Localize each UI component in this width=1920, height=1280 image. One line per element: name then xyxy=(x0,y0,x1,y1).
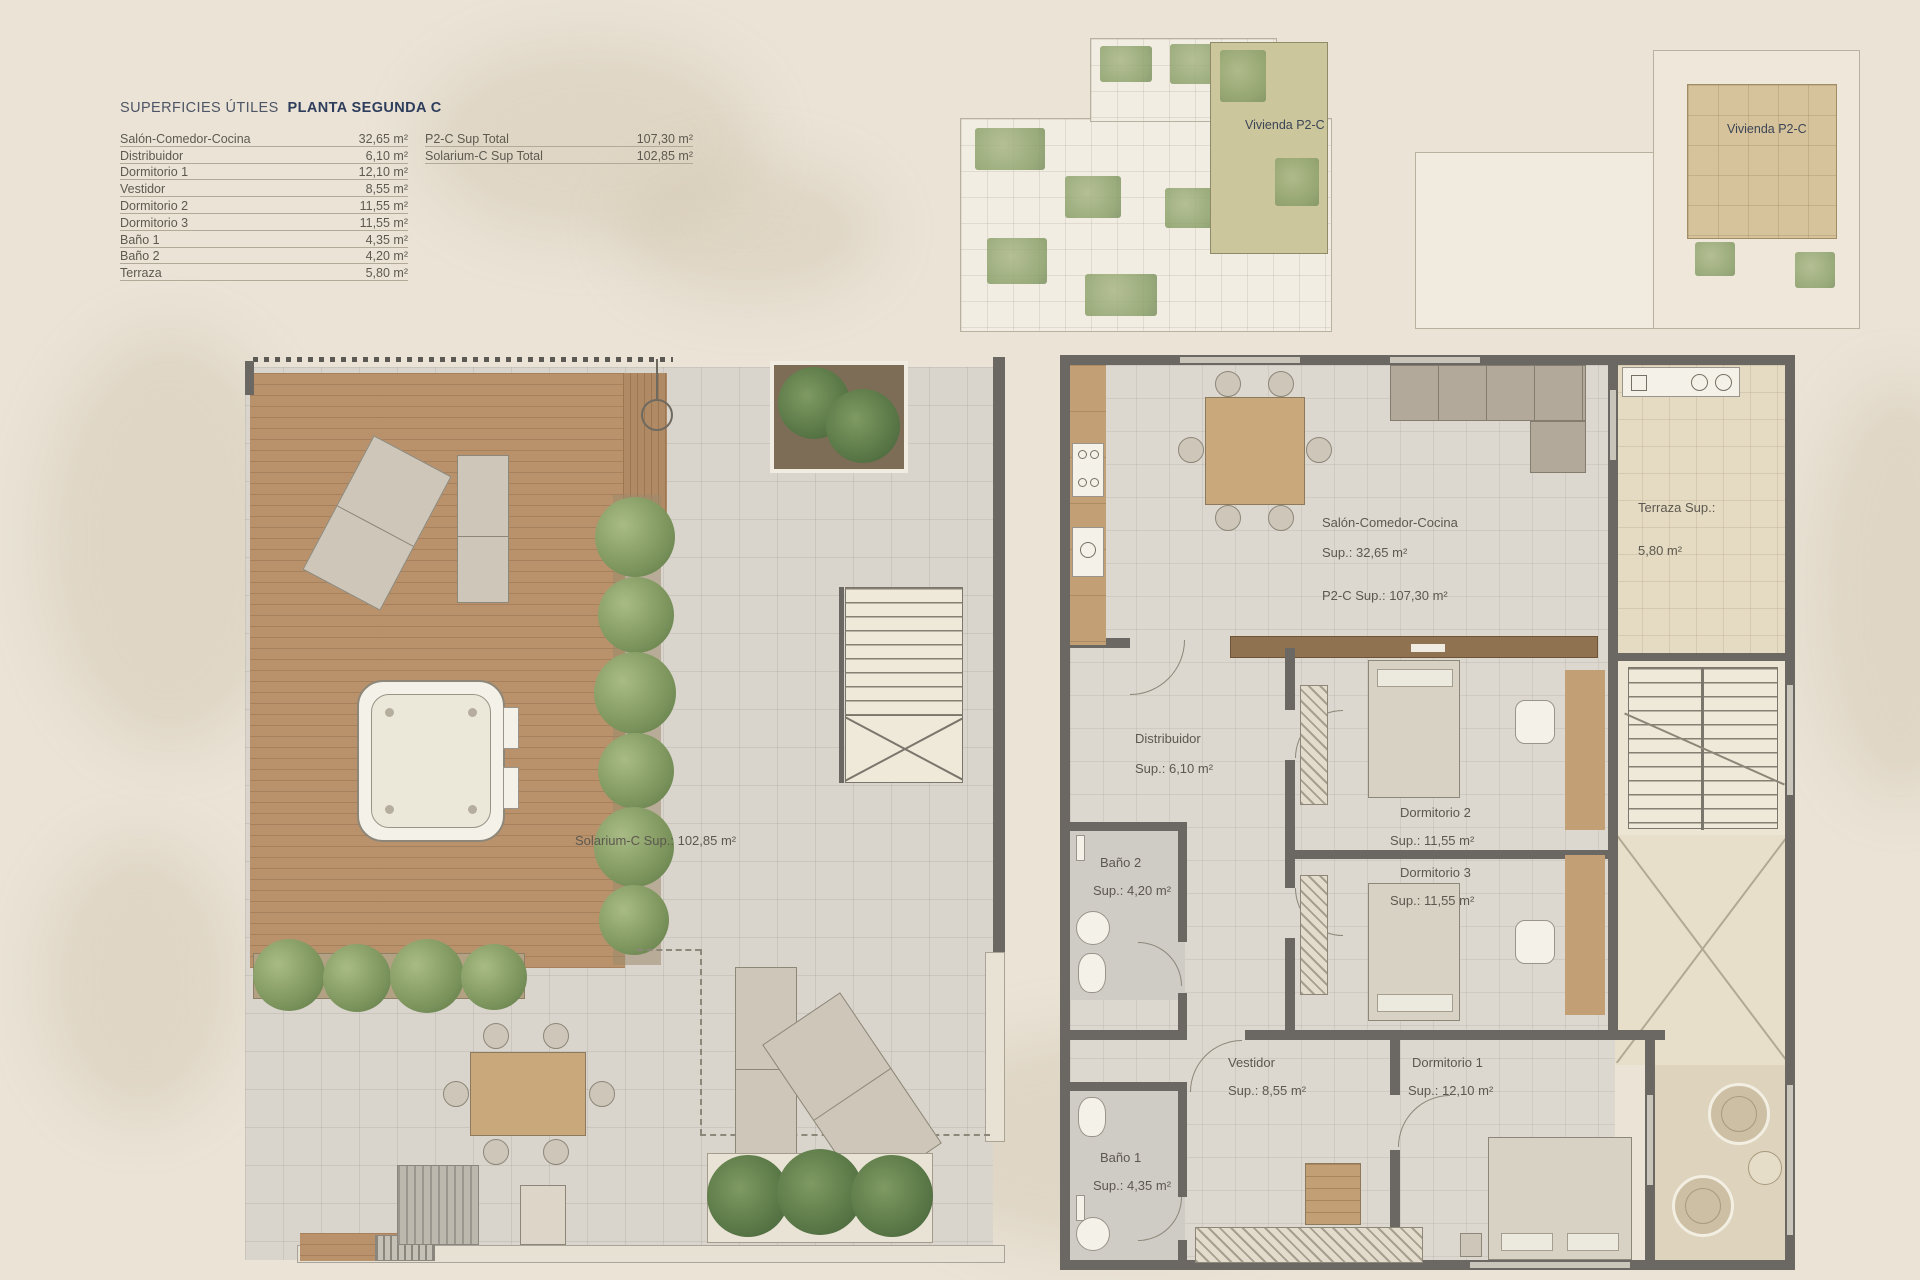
floorplan-sheet: SUPERFICIES ÚTILES PLANTA SEGUNDA C Saló… xyxy=(0,0,1920,1280)
legend-title-right: PLANTA SEGUNDA C xyxy=(288,100,442,116)
balcony-door xyxy=(1647,1095,1653,1185)
legend-row: Baño 24,20 m² xyxy=(120,248,408,265)
legend-title: SUPERFICIES ÚTILES PLANTA SEGUNDA C xyxy=(120,100,700,116)
palm-tree xyxy=(826,389,900,463)
room-label-vestidor: Vestidor xyxy=(1228,1055,1275,1070)
key-plan-1: Vivienda P2-C xyxy=(915,38,1330,330)
desk xyxy=(1565,855,1605,1015)
jacuzzi xyxy=(357,680,505,842)
hedge-bush xyxy=(595,497,675,577)
room-label-bano1-sup: Sup.: 4,35 m² xyxy=(1093,1178,1171,1193)
key-plan-2: Vivienda P2-C xyxy=(1415,42,1860,327)
hedge-bush xyxy=(390,939,464,1013)
room-label-distribuidor-sup: Sup.: 6,10 m² xyxy=(1135,761,1213,776)
chair xyxy=(1215,505,1241,531)
legend-total-row: Solarium-C Sup Total102,85 m² xyxy=(425,147,693,164)
stairs-diagonal xyxy=(845,715,963,783)
sink xyxy=(1076,1217,1110,1251)
chair xyxy=(543,1023,569,1049)
legend-row: Dormitorio 211,55 m² xyxy=(120,197,408,214)
key-plan-2-highlight xyxy=(1687,84,1837,239)
wardrobe-band xyxy=(1195,1227,1423,1263)
chair xyxy=(1268,505,1294,531)
room-label-dormitorio2: Dormitorio 2 xyxy=(1400,805,1471,820)
legend-totals: P2-C Sup Total107,30 m² Solarium-C Sup T… xyxy=(425,130,693,164)
room-label-salon-sup: Sup.: 32,65 m² xyxy=(1322,545,1407,560)
wardrobe xyxy=(1300,685,1328,805)
legend-row: Vestidor8,55 m² xyxy=(120,180,408,197)
room-label-p2c-total: P2-C Sup.: 107,30 m² xyxy=(1322,588,1448,603)
desk-chair xyxy=(1515,700,1555,744)
bed xyxy=(1368,660,1460,798)
solarium-area-label: Solarium-C Sup.: 102,85 m² xyxy=(575,833,736,848)
egg-chair xyxy=(1672,1175,1734,1237)
sofa-chaise xyxy=(1530,421,1586,473)
chair xyxy=(543,1139,569,1165)
desk xyxy=(1565,670,1605,830)
hedge-bush xyxy=(594,652,676,734)
watermark-blob xyxy=(620,160,880,300)
jacuzzi-step xyxy=(503,707,519,749)
hedge-bush xyxy=(253,939,325,1011)
grate xyxy=(397,1165,479,1245)
dining-table xyxy=(1205,397,1305,505)
key-plan-1-label: Vivienda P2-C xyxy=(1245,118,1325,132)
legend-row: Distribuidor6,10 m² xyxy=(120,147,408,164)
wardrobe xyxy=(1300,875,1328,995)
shelving xyxy=(1305,1163,1361,1225)
dashed-boundary xyxy=(700,949,704,1135)
hedge-bush xyxy=(598,733,674,809)
legend-row: Baño 14,35 m² xyxy=(120,231,408,248)
room-label-dormitorio1: Dormitorio 1 xyxy=(1412,1055,1483,1070)
window xyxy=(1390,357,1480,363)
window xyxy=(1787,685,1793,795)
legend-row: Terraza5,80 m² xyxy=(120,264,408,281)
light-icon xyxy=(641,399,673,431)
jacuzzi-step xyxy=(503,767,519,809)
kitchen-sink xyxy=(1072,527,1104,577)
room-label-bano2-sup: Sup.: 4,20 m² xyxy=(1093,883,1171,898)
room-label-dormitorio3: Dormitorio 3 xyxy=(1400,865,1471,880)
window xyxy=(1180,357,1300,363)
room-label-bano1: Baño 1 xyxy=(1100,1150,1141,1165)
room-label-dormitorio3-sup: Sup.: 11,55 m² xyxy=(1390,893,1474,908)
room-label-vestidor-sup: Sup.: 8,55 m² xyxy=(1228,1083,1306,1098)
watermark-blob xyxy=(40,840,240,1120)
solarium-stairs xyxy=(845,587,963,717)
room-label-dormitorio1-sup: Sup.: 12,10 m² xyxy=(1408,1083,1493,1098)
room-label-terraza: Terraza Sup.: xyxy=(1638,500,1715,515)
chair xyxy=(589,1081,615,1107)
chair xyxy=(1178,437,1204,463)
shower-head-icon xyxy=(1076,835,1085,861)
palm-tree xyxy=(777,1149,863,1235)
chair xyxy=(443,1081,469,1107)
hedge-bush xyxy=(323,944,391,1012)
watermark-blob xyxy=(1810,380,1920,800)
hedge-bush xyxy=(599,885,669,955)
double-bed xyxy=(1488,1137,1632,1260)
chair xyxy=(483,1139,509,1165)
party-wall xyxy=(985,952,1005,1142)
kitchen-counter xyxy=(1070,365,1106,645)
deck xyxy=(250,373,625,968)
dashed-boundary xyxy=(637,949,701,953)
room-label-terraza-sup: 5,80 m² xyxy=(1638,543,1682,558)
legend-total-row: P2-C Sup Total107,30 m² xyxy=(425,130,693,147)
room-label-dormitorio2-sup: Sup.: 11,55 m² xyxy=(1390,833,1474,848)
window xyxy=(1470,1262,1630,1268)
balustrade-dotted-line xyxy=(253,357,673,362)
planter-box xyxy=(520,1185,566,1245)
sun-lounger xyxy=(457,455,509,603)
egg-chair xyxy=(1708,1083,1770,1145)
solarium-plan: Solarium-C Sup.: 102,85 m² xyxy=(245,355,1007,1270)
window xyxy=(1787,1085,1793,1235)
nightstand xyxy=(1460,1233,1482,1257)
desk-chair xyxy=(1515,920,1555,964)
toilet xyxy=(1078,1097,1106,1137)
hob xyxy=(1072,443,1104,497)
room-label-salon: Salón-Comedor-Cocina xyxy=(1322,515,1458,530)
apartment-stairs xyxy=(1628,667,1778,829)
key-plan-2-label: Vivienda P2-C xyxy=(1727,122,1807,136)
solarium-right-wall xyxy=(993,357,1005,952)
light-stem xyxy=(656,359,658,401)
outdoor-kitchen xyxy=(1622,367,1740,397)
chair xyxy=(1215,371,1241,397)
legend-row: Dormitorio 311,55 m² xyxy=(120,214,408,231)
chair xyxy=(1268,371,1294,397)
room-label-bano2: Baño 2 xyxy=(1100,855,1141,870)
sink xyxy=(1076,911,1110,945)
sofa xyxy=(1390,365,1586,421)
legend: SUPERFICIES ÚTILES PLANTA SEGUNDA C Saló… xyxy=(120,100,700,116)
chair xyxy=(1306,437,1332,463)
palm-planter xyxy=(770,361,908,473)
hedge-bush xyxy=(461,944,527,1010)
legend-title-left: SUPERFICIES ÚTILES xyxy=(120,100,279,116)
legend-row: Salón-Comedor-Cocina32,65 m² xyxy=(120,130,408,147)
palm-tree xyxy=(851,1155,933,1237)
room-label-distribuidor: Distribuidor xyxy=(1135,731,1201,746)
legend-table: Salón-Comedor-Cocina32,65 m² Distribuido… xyxy=(120,130,408,281)
wall-stub xyxy=(245,361,254,395)
legend-row: Dormitorio 112,10 m² xyxy=(120,164,408,181)
chair xyxy=(483,1023,509,1049)
shower-head-icon xyxy=(1076,1195,1085,1221)
toilet xyxy=(1078,953,1106,993)
terraza-door xyxy=(1610,390,1616,460)
hedge-bush xyxy=(598,577,674,653)
dining-table xyxy=(470,1052,586,1136)
apartment-plan: Salón-Comedor-Cocina Sup.: 32,65 m² P2-C… xyxy=(1060,355,1795,1270)
side-table xyxy=(1748,1151,1782,1185)
